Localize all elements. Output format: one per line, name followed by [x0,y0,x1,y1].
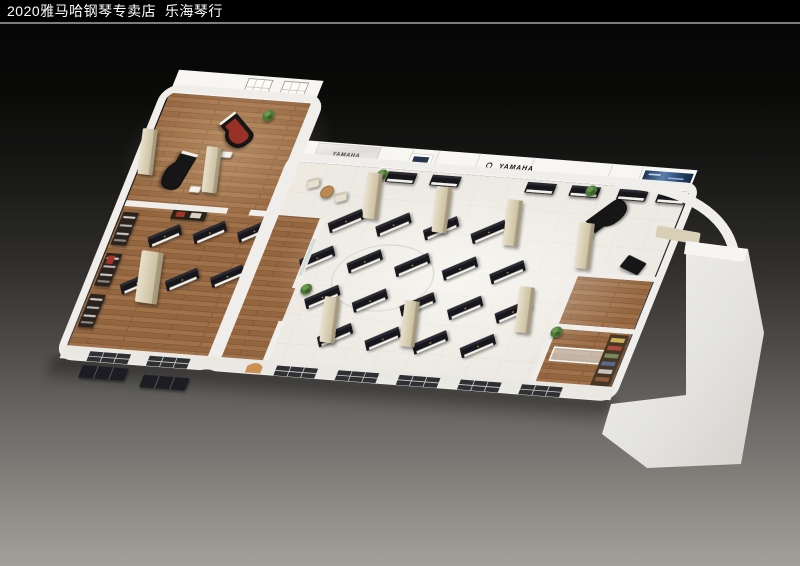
render-canvas: YAMAHAYAMAHA 2020雅马哈钢琴专卖店 乐海琴行 [0,0,800,566]
wall-upright-piano [429,175,462,188]
store-3d-render: YAMAHAYAMAHA [0,0,800,566]
building-plan: YAMAHAYAMAHA [29,66,730,426]
wall-upright-piano [524,182,557,195]
piano-bench [220,151,233,158]
title-bar: 2020雅马哈钢琴专卖店 乐海琴行 [0,0,800,24]
wall-upright-piano [385,171,418,184]
piano-bench [189,186,202,193]
page-title: 2020雅马哈钢琴专卖店 乐海琴行 [0,1,223,21]
floorplan-svg: YAMAHAYAMAHA [0,0,800,566]
